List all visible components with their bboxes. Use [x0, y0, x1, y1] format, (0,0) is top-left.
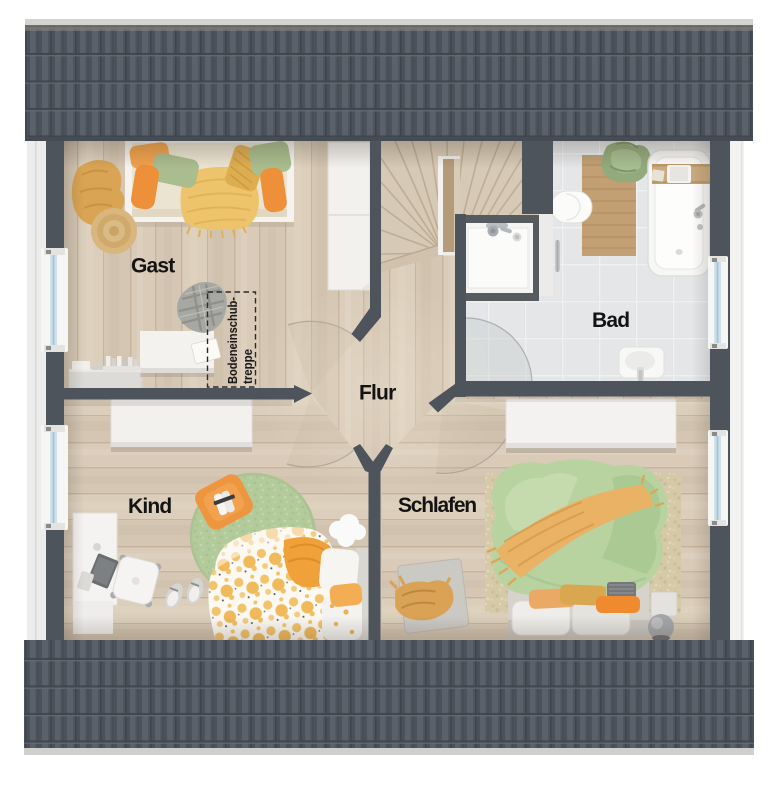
svg-text:Flur: Flur [359, 382, 396, 405]
svg-text:treppe: treppe [240, 349, 255, 384]
svg-text:Bodeneinschub-: Bodeneinschub- [225, 297, 240, 384]
svg-text:Bad: Bad [592, 309, 629, 332]
svg-text:Schlafen: Schlafen [398, 494, 476, 517]
svg-text:Gast: Gast [131, 255, 175, 278]
svg-text:Kind: Kind [128, 495, 171, 518]
